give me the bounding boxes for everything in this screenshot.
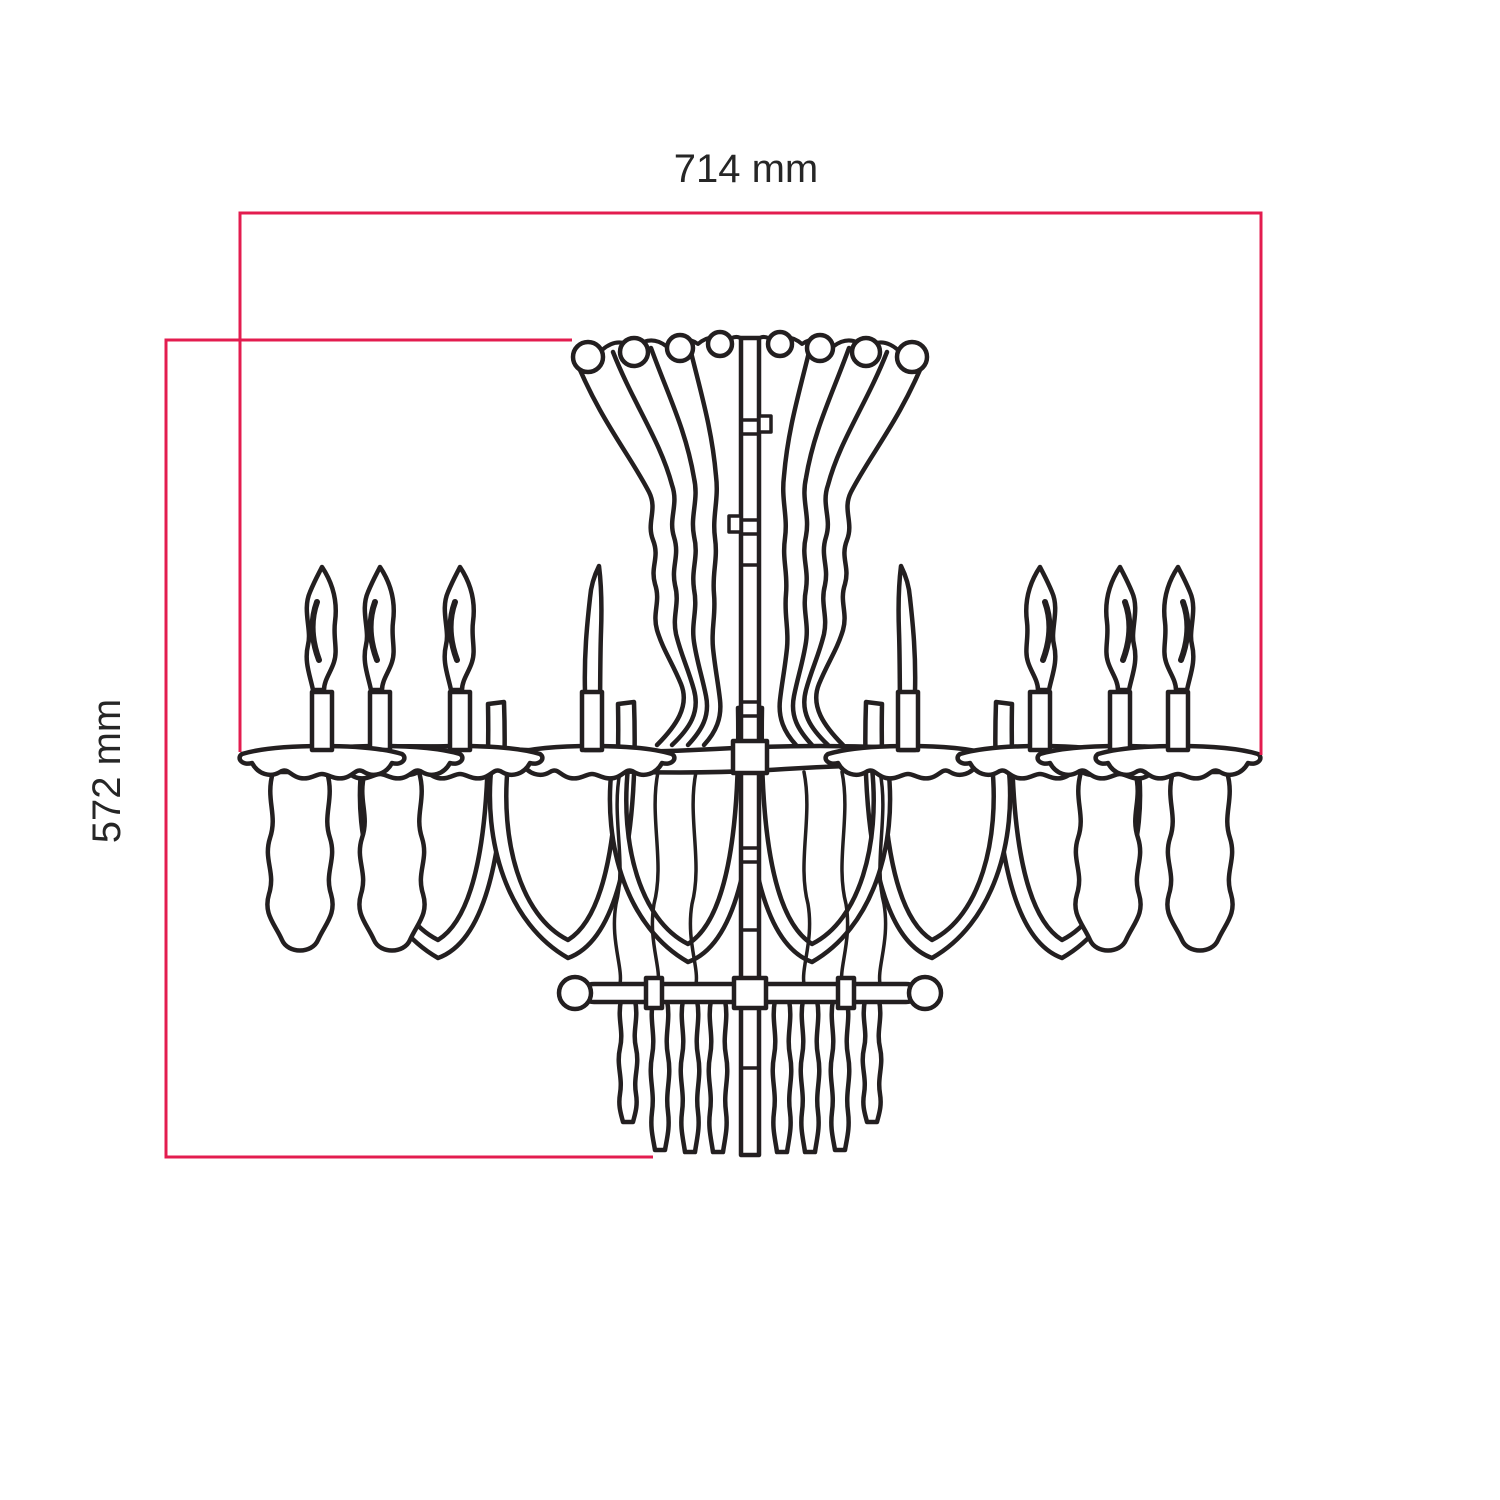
drawing-canvas: 714 mm 572 mm [0,0,1500,1500]
chandelier-line-drawing [240,332,1261,1155]
height-dimension-label: 572 mm [85,699,129,844]
chandelier-candles-left [240,566,675,778]
chandelier-fringe-right [773,1000,882,1152]
chandelier-center-spine [729,338,771,1155]
chandelier-candles-right [826,566,1261,778]
chandelier-fringe-left [619,1000,728,1152]
dimension-diagram: 714 mm 572 mm [0,0,1500,1500]
width-dimension-label: 714 mm [674,147,819,191]
